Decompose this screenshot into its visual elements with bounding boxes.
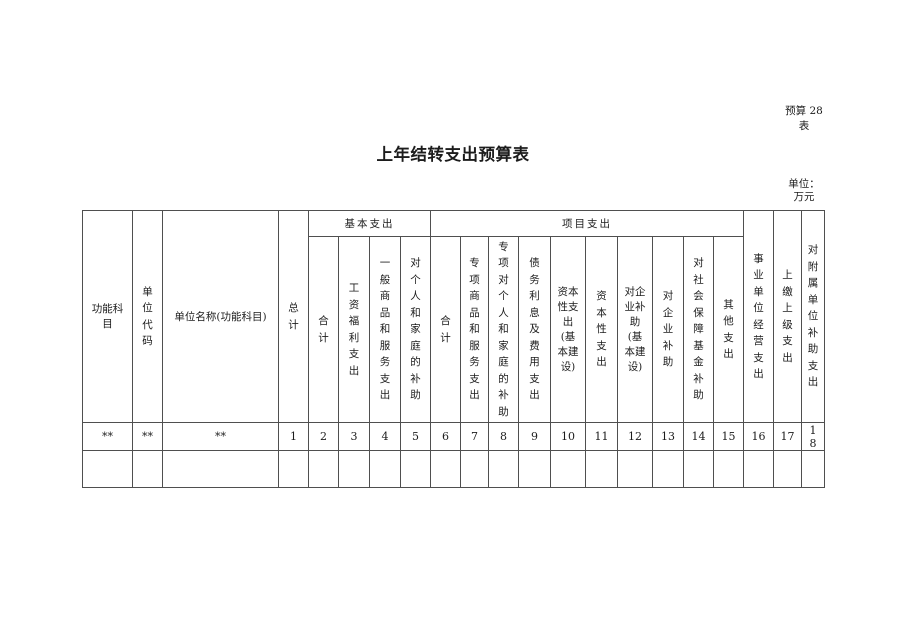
col-header-unit-code: 单位代码 [133, 211, 163, 423]
col-label-char: 工 [349, 283, 360, 294]
col-label-payment-to-superior-expenditure: 上缴上级支出 [774, 270, 801, 363]
col-label-char: 障 [693, 324, 704, 335]
col-label-char: 合 [440, 316, 451, 327]
unit-note-line2: 万元 [763, 191, 845, 204]
col-label-char: 代 [142, 320, 153, 331]
column-number-cell-basic-total: 2 [309, 423, 339, 451]
data-cell-capital-expenditure [586, 451, 618, 488]
col-header-business-unit-operating-expenditure: 事业单位经营支出 [744, 211, 774, 423]
col-label-enterprise-subsidy: 对企业补助 [653, 291, 683, 368]
col-label-char: 会 [693, 291, 704, 302]
col-header-capital-expenditure-basic-construction: 资本性支出(基本建设) [551, 237, 586, 423]
col-label-char: 位 [808, 311, 819, 322]
data-cell-wage-welfare-expenditure [339, 451, 370, 488]
form-number-line1: 预算 28 [763, 104, 845, 119]
col-label-char: 项 [498, 258, 509, 269]
data-cell-special-individual-family-subsidy [489, 451, 519, 488]
col-header-social-security-fund-subsidy: 对社会保障基金补助 [684, 237, 714, 423]
data-cell-enterprise-subsidy-basic-construction [618, 451, 653, 488]
col-label-char: 服 [469, 341, 480, 352]
col-label-char: 其 [723, 300, 734, 311]
col-label-char: 位 [142, 303, 153, 314]
col-label-char: 支 [808, 361, 819, 372]
data-cell-business-unit-operating-expenditure [744, 451, 774, 488]
col-label-char: 项 [469, 275, 480, 286]
column-number-cell-affiliated-unit-subsidy-expenditure: 18 [802, 423, 825, 451]
col-label-char: 务 [469, 357, 480, 368]
col-label-char: 计 [288, 320, 299, 331]
col-header-capital-expenditure: 资本性支出 [586, 237, 618, 423]
column-number-cell-general-goods-services-expenditure: 4 [370, 423, 401, 451]
column-number-cell-debt-interest-fee-expenditure: 9 [519, 423, 551, 451]
col-label-char: 助 [410, 390, 421, 401]
col-label-char: 对 [808, 245, 819, 256]
col-label-char: 一 [380, 258, 391, 269]
col-label-char: 码 [142, 336, 153, 347]
col-label-char: 补 [808, 328, 819, 339]
col-label-char: 人 [498, 308, 509, 319]
header-group-row: 功能科目单位代码单位名称(功能科目)总计基本支出项目支出事业单位经营支出上缴上级… [83, 211, 825, 237]
col-label-char: 息 [529, 308, 540, 319]
col-label-char: 支 [380, 374, 391, 385]
col-header-functional-subject: 功能科目 [83, 211, 133, 423]
data-cell-general-goods-services-expenditure [370, 451, 401, 488]
col-label-char: 庭 [498, 357, 509, 368]
col-label-individual-family-subsidy: 对个人和家庭的补助 [401, 258, 430, 401]
col-header-unit-name: 单位名称(功能科目) [163, 211, 279, 423]
col-label-char: 补 [693, 374, 704, 385]
col-label-char: 出 [349, 366, 360, 377]
data-cell-debt-interest-fee-expenditure [519, 451, 551, 488]
data-cell-other-expenditure [714, 451, 744, 488]
col-label-char: 社 [693, 275, 704, 286]
column-number-cell-individual-family-subsidy: 5 [401, 423, 431, 451]
column-number-cell-special-individual-family-subsidy: 8 [489, 423, 519, 451]
col-label-char: 支 [529, 374, 540, 385]
form-number-line2: 表 [763, 119, 845, 134]
col-label-char: 出 [596, 357, 607, 368]
col-header-general-goods-services-expenditure: 一般商品和服务支出 [370, 237, 401, 423]
data-cell-basic-total [309, 451, 339, 488]
col-header-other-expenditure: 其他支出 [714, 237, 744, 423]
col-label-char: 个 [498, 291, 509, 302]
col-label-char: 金 [693, 357, 704, 368]
col-label-special-individual-family-subsidy: 专项对个人和家庭的补助 [489, 242, 518, 418]
col-label-char: 资 [596, 291, 607, 302]
col-label-char: 出 [753, 369, 764, 380]
col-label-char: 性 [596, 324, 607, 335]
col-label-char: 家 [498, 341, 509, 352]
column-number-cell-enterprise-subsidy-basic-construction: 12 [618, 423, 653, 451]
col-label-char: 商 [380, 291, 391, 302]
col-label-basic-total: 合计 [309, 316, 338, 343]
col-header-special-goods-services-expenditure: 专项商品和服务支出 [461, 237, 489, 423]
data-cell-capital-expenditure-basic-construction [551, 451, 586, 488]
data-cell-project-total [431, 451, 461, 488]
col-header-enterprise-subsidy: 对企业补助 [653, 237, 684, 423]
group-header-project-expenditure: 项目支出 [431, 211, 744, 237]
col-label-char: 他 [723, 316, 734, 327]
col-label-char: 支 [469, 374, 480, 385]
col-header-payment-to-superior-expenditure: 上缴上级支出 [774, 211, 802, 423]
unit-note-line1: 单位： [763, 178, 845, 191]
col-label-char: 务 [380, 357, 391, 368]
col-label-char: 务 [529, 275, 540, 286]
col-header-individual-family-subsidy: 对个人和家庭的补助 [401, 237, 431, 423]
column-number-cell-unit-name: ** [163, 423, 279, 451]
column-number-cell-other-expenditure: 15 [714, 423, 744, 451]
column-number-cell-payment-to-superior-expenditure: 17 [774, 423, 802, 451]
col-label-char: 利 [349, 333, 360, 344]
data-cell-enterprise-subsidy [653, 451, 684, 488]
col-label-char: 家 [410, 324, 421, 335]
data-cell-social-security-fund-subsidy [684, 451, 714, 488]
data-cell-grand-total [279, 451, 309, 488]
col-label-char: 计 [318, 333, 329, 344]
col-label-char: 及 [529, 324, 540, 335]
col-label-char: 助 [498, 407, 509, 418]
col-label-debt-interest-fee-expenditure: 债务利息及费用支出 [519, 258, 550, 401]
column-number-cell-grand-total: 1 [279, 423, 309, 451]
unit-note: 单位： 万元 [763, 178, 845, 204]
col-label-char: 支 [723, 333, 734, 344]
data-cell-special-goods-services-expenditure [461, 451, 489, 488]
col-label-char: 基 [693, 341, 704, 352]
col-label-wage-welfare-expenditure: 工资福利支出 [339, 283, 369, 376]
col-label-char: 补 [410, 374, 421, 385]
col-label-char: 的 [498, 374, 509, 385]
col-label-char: 资 [349, 300, 360, 311]
column-number-cell-project-total: 6 [431, 423, 461, 451]
col-label-char: 助 [808, 344, 819, 355]
col-label-char: 支 [782, 336, 793, 347]
col-label-char: 专 [469, 258, 480, 269]
data-cell-individual-family-subsidy [401, 451, 431, 488]
col-label-char: 和 [380, 324, 391, 335]
col-label-char: 品 [469, 308, 480, 319]
col-label-char: 福 [349, 316, 360, 327]
col-label-char: 缴 [782, 287, 793, 298]
col-label-char: 用 [529, 357, 540, 368]
column-number-cell-wage-welfare-expenditure: 3 [339, 423, 370, 451]
col-label-char: 业 [753, 270, 764, 281]
col-label-project-total: 合计 [431, 316, 460, 343]
col-label-unit-name: 单位名称(功能科目) [163, 310, 278, 324]
col-label-char: 附 [808, 262, 819, 273]
data-cell-unit-code [133, 451, 163, 488]
col-label-char: 出 [469, 390, 480, 401]
budget-table: 功能科目单位代码单位名称(功能科目)总计基本支出项目支出事业单位经营支出上缴上级… [82, 210, 825, 488]
col-label-char: 对 [663, 291, 674, 302]
col-label-general-goods-services-expenditure: 一般商品和服务支出 [370, 258, 400, 401]
col-label-char: 出 [529, 390, 540, 401]
column-number-cell-social-security-fund-subsidy: 14 [684, 423, 714, 451]
col-header-project-total: 合计 [431, 237, 461, 423]
page-title: 上年结转支出预算表 [82, 144, 824, 166]
col-label-char: 个 [410, 275, 421, 286]
col-label-char: 合 [318, 316, 329, 327]
col-label-special-goods-services-expenditure: 专项商品和服务支出 [461, 258, 488, 401]
col-label-char: 总 [288, 303, 299, 314]
col-label-char: 级 [782, 320, 793, 331]
col-label-char: 企 [663, 308, 674, 319]
col-header-enterprise-subsidy-basic-construction: 对企业补助(基本建设) [618, 237, 653, 423]
column-number-cell-capital-expenditure-basic-construction: 10 [551, 423, 586, 451]
col-label-char: 本 [596, 308, 607, 319]
col-label-char: 对 [693, 258, 704, 269]
col-label-char: 单 [753, 287, 764, 298]
col-label-char: 位 [753, 303, 764, 314]
data-cell-unit-name [163, 451, 279, 488]
col-header-debt-interest-fee-expenditure: 债务利息及费用支出 [519, 237, 551, 423]
col-header-basic-total: 合计 [309, 237, 339, 423]
col-label-char: 支 [349, 349, 360, 360]
col-label-char: 上 [782, 303, 793, 314]
col-label-char: 上 [782, 270, 793, 281]
col-label-capital-expenditure-basic-construction: 资本性支出(基本建设) [556, 285, 580, 375]
col-label-char: 补 [663, 341, 674, 352]
col-label-char: 商 [469, 291, 480, 302]
col-label-char: 般 [380, 275, 391, 286]
column-number-cell-capital-expenditure: 11 [586, 423, 618, 451]
col-label-social-security-fund-subsidy: 对社会保障基金补助 [684, 258, 713, 401]
data-cell-payment-to-superior-expenditure [774, 451, 802, 488]
col-header-special-individual-family-subsidy: 专项对个人和家庭的补助 [489, 237, 519, 423]
col-label-char: 业 [663, 324, 674, 335]
col-label-capital-expenditure: 资本性支出 [586, 291, 617, 368]
col-label-char: 属 [808, 278, 819, 289]
column-number-cell-functional-subject: ** [83, 423, 133, 451]
col-label-char: 支 [753, 353, 764, 364]
col-label-char: 支 [596, 341, 607, 352]
col-label-char: 事 [753, 254, 764, 265]
col-label-char: 和 [469, 324, 480, 335]
col-label-affiliated-unit-subsidy-expenditure: 对附属单位补助支出 [802, 245, 824, 388]
col-label-char: 助 [693, 390, 704, 401]
col-label-char: 计 [440, 333, 451, 344]
col-label-char: 利 [529, 291, 540, 302]
col-label-functional-subject: 功能科目 [90, 302, 125, 332]
col-label-business-unit-operating-expenditure: 事业单位经营支出 [744, 254, 773, 380]
col-label-char: 出 [782, 353, 793, 364]
col-label-char: 出 [723, 349, 734, 360]
col-label-char: 单 [142, 287, 153, 298]
col-label-char: 和 [498, 324, 509, 335]
col-label-enterprise-subsidy-basic-construction: 对企业补助(基本建设) [623, 285, 647, 375]
col-label-other-expenditure: 其他支出 [714, 300, 743, 360]
col-label-char: 保 [693, 308, 704, 319]
col-label-char: 对 [498, 275, 509, 286]
col-label-char: 庭 [410, 341, 421, 352]
col-label-char: 的 [410, 357, 421, 368]
form-number-note: 预算 28 表 [763, 104, 845, 134]
col-header-affiliated-unit-subsidy-expenditure: 对附属单位补助支出 [802, 211, 825, 423]
col-label-char: 服 [380, 341, 391, 352]
col-label-char: 费 [529, 341, 540, 352]
column-number-cell-unit-code: ** [133, 423, 163, 451]
col-label-char: 对 [410, 258, 421, 269]
col-label-char: 补 [498, 390, 509, 401]
data-row [83, 451, 825, 488]
document-page: 预算 28 表 上年结转支出预算表 单位： 万元 功能科目单位代码单位名称(功能… [0, 0, 898, 635]
col-label-char: 出 [808, 377, 819, 388]
col-label-char: 品 [380, 308, 391, 319]
col-label-char: 和 [410, 308, 421, 319]
col-label-char: 营 [753, 336, 764, 347]
col-label-char: 债 [529, 258, 540, 269]
col-label-unit-code: 单位代码 [133, 287, 162, 347]
group-header-basic-expenditure: 基本支出 [309, 211, 431, 237]
col-label-char: 经 [753, 320, 764, 331]
col-label-char: 人 [410, 291, 421, 302]
column-number-row: ******123456789101112131415161718 [83, 423, 825, 451]
col-label-char: 助 [663, 357, 674, 368]
col-label-char: 专 [498, 242, 509, 253]
col-header-wage-welfare-expenditure: 工资福利支出 [339, 237, 370, 423]
col-header-grand-total: 总计 [279, 211, 309, 423]
data-cell-affiliated-unit-subsidy-expenditure [802, 451, 825, 488]
column-number-cell-enterprise-subsidy: 13 [653, 423, 684, 451]
column-number-cell-business-unit-operating-expenditure: 16 [744, 423, 774, 451]
column-number-cell-special-goods-services-expenditure: 7 [461, 423, 489, 451]
col-label-char: 单 [808, 295, 819, 306]
data-cell-functional-subject [83, 451, 133, 488]
col-label-grand-total: 总计 [279, 303, 308, 330]
col-label-char: 出 [380, 390, 391, 401]
